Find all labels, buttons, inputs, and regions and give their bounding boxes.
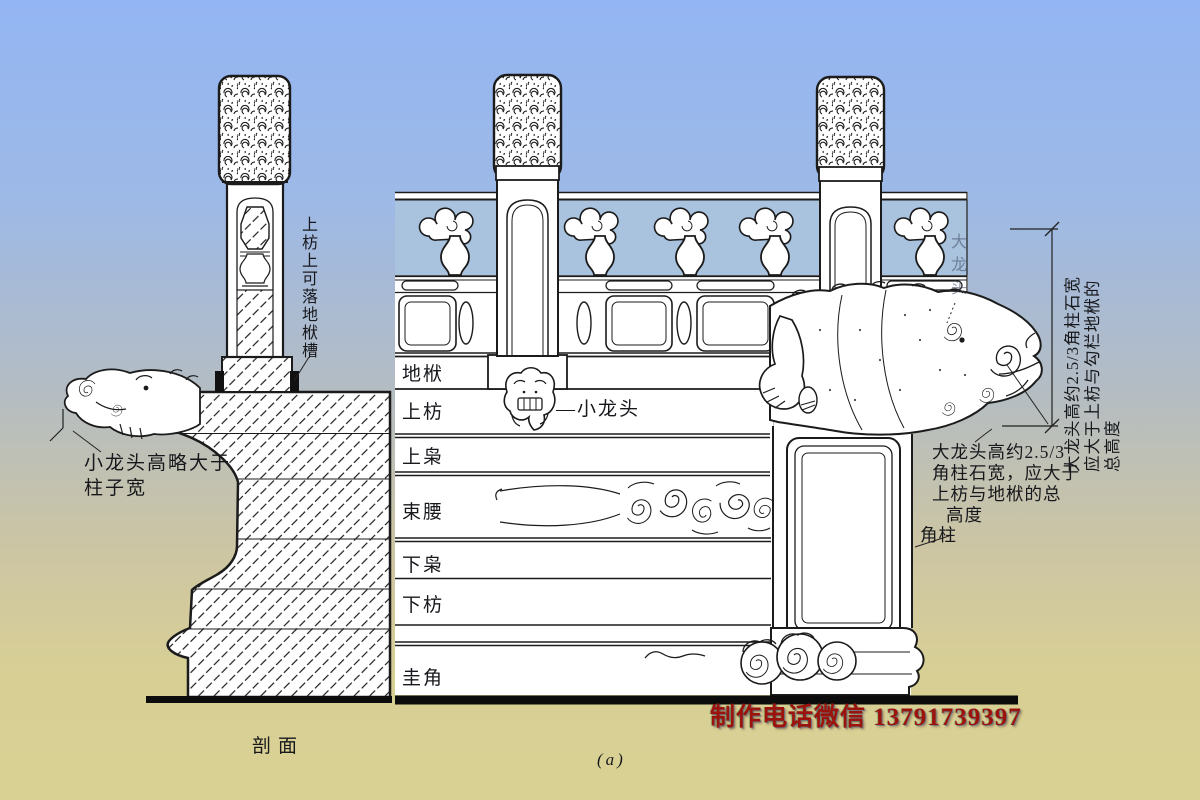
band-label-shangxiao: 上枭 xyxy=(402,445,444,470)
left-baluster-post xyxy=(488,75,567,389)
band-label-shangfang: 上枋 xyxy=(402,400,444,425)
band-label-guijiao: 圭角 xyxy=(402,666,444,691)
watermark: 制作电话微信 13791739397 xyxy=(710,697,1022,733)
section-view xyxy=(65,76,390,697)
big-dragon-note-line4: 高度 xyxy=(946,505,1080,526)
band-label-difu: 地栿 xyxy=(402,362,444,387)
note-groove: 上枋上可落地栿槽 xyxy=(297,216,317,360)
section-post xyxy=(219,76,290,357)
elevation-view xyxy=(395,75,1042,695)
rotated-note-line2: 应大于上枋与勾栏地栿的 xyxy=(1083,276,1103,472)
note-big-dragon: 大龙头高约2.5/3 角柱石宽，应大于 上枋与地栿的总 高度 xyxy=(932,442,1080,526)
screenshot-root: 上枋上可落地栿槽 小龙头高略大于 柱子宽 地栿 上枋 上枭 束腰 下枭 下枋 圭… xyxy=(0,0,1200,800)
caption-section: 剖面 xyxy=(252,734,304,759)
label-small-dragon-head: —小龙头 xyxy=(556,397,640,422)
small-dragon-head-side xyxy=(65,369,200,439)
big-dragon-head xyxy=(760,282,1042,435)
band-label-xiaxiao: 下枭 xyxy=(402,553,444,578)
label-big-dragon-faint: 大龙头 xyxy=(946,233,966,302)
groove-mark-right xyxy=(290,371,299,392)
big-dragon-note-line1: 大龙头高约2.5/3 xyxy=(932,442,1080,463)
note-small-dragon-line1: 小龙头高略大于 xyxy=(84,451,231,476)
big-dragon-note-line3: 上枋与地栿的总 xyxy=(932,484,1080,505)
band-label-xiafang: 下枋 xyxy=(402,593,444,618)
band-label-shuyao: 束腰 xyxy=(402,500,444,525)
right-baluster-post xyxy=(817,77,884,304)
pedestal-section-profile xyxy=(152,392,390,697)
note-small-dragon: 小龙头高略大于 柱子宽 xyxy=(84,451,231,501)
rotated-note-line3: 总高度 xyxy=(1103,276,1123,472)
big-dragon-note-line2: 角柱石宽，应大于 xyxy=(932,463,1080,484)
groove-mark-left xyxy=(215,371,224,392)
caption-figure-a: (a) xyxy=(597,747,626,772)
label-corner-post: 角柱 xyxy=(920,525,957,546)
note-small-dragon-line2: 柱子宽 xyxy=(84,476,231,501)
